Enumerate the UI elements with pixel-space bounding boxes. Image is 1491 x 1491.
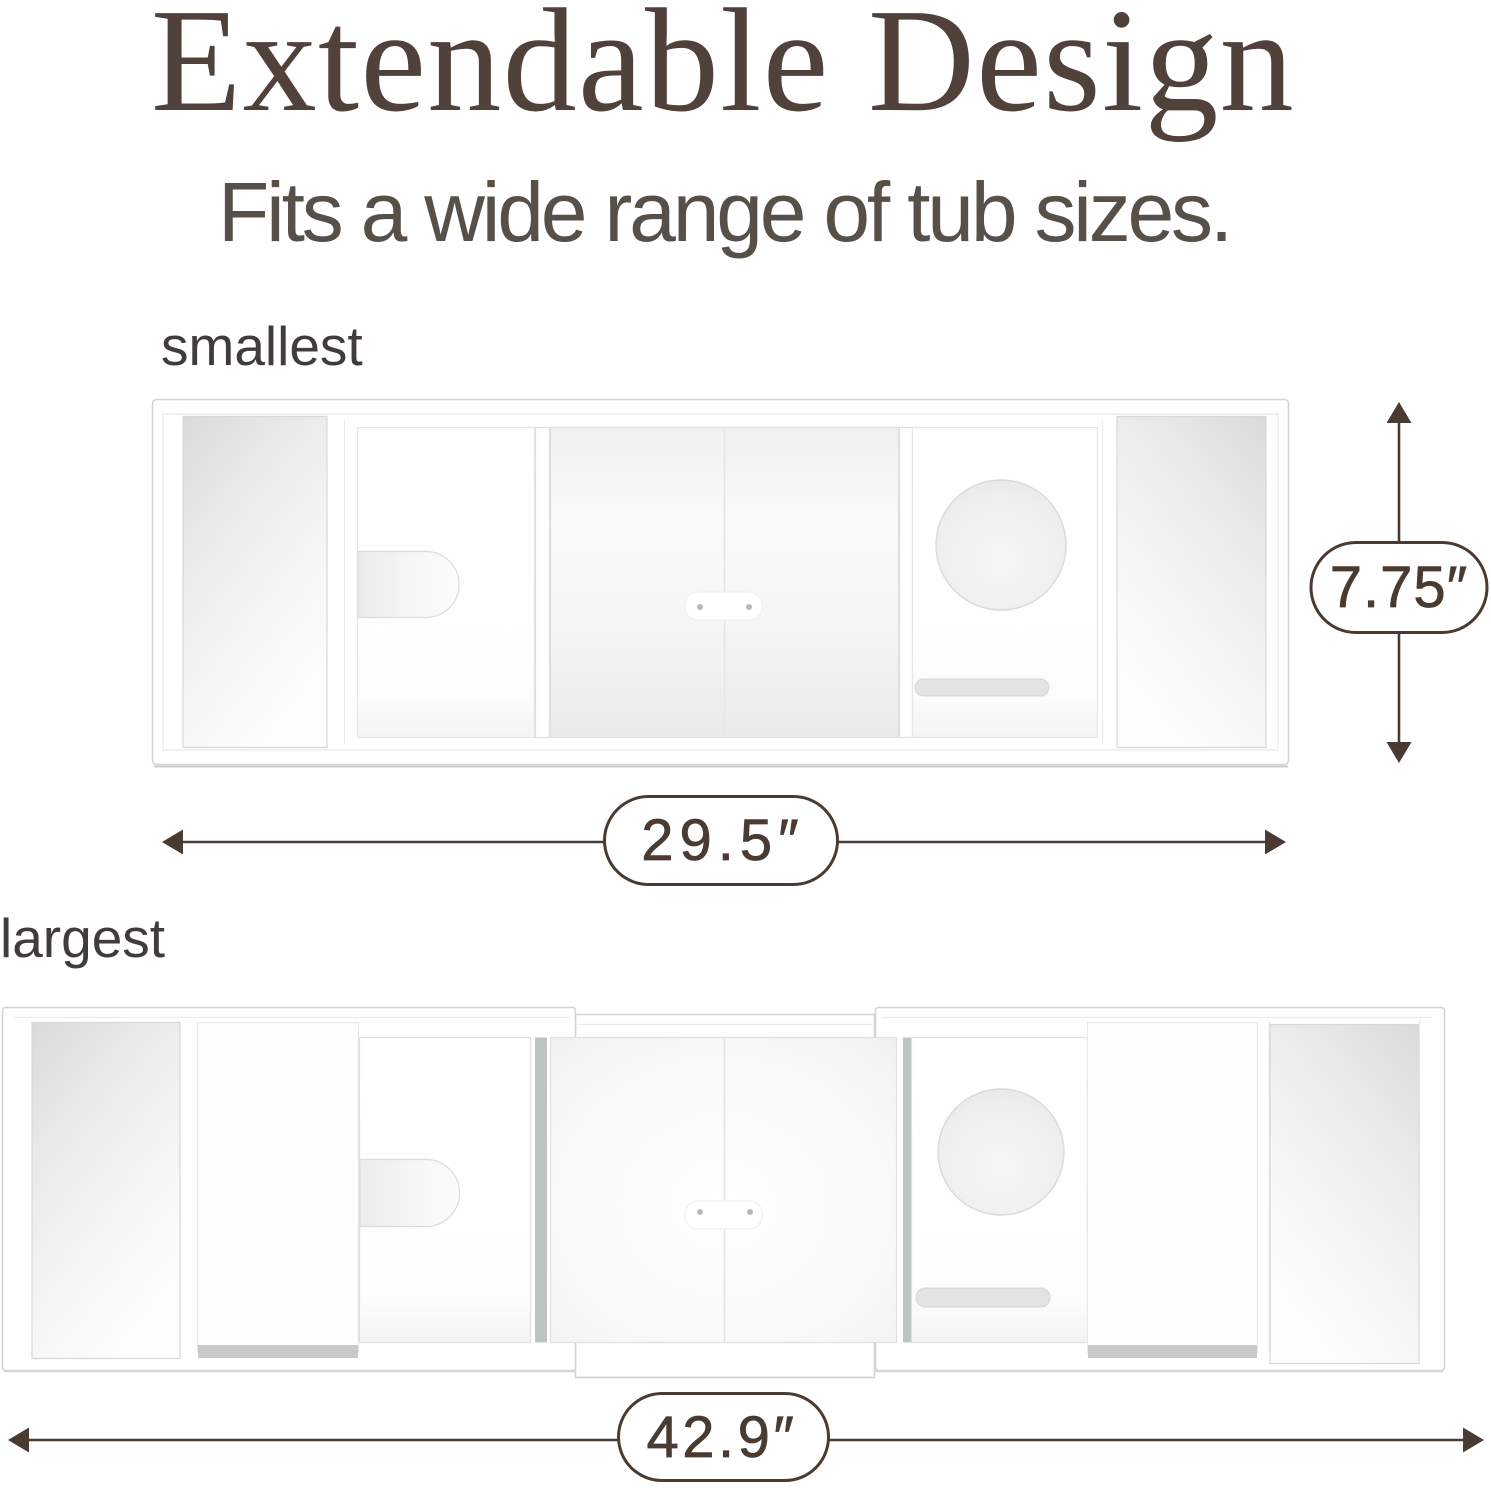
svg-text:42.9″: 42.9″: [647, 1405, 798, 1470]
svg-text:7.75″: 7.75″: [1330, 555, 1468, 620]
svg-text:29.5″: 29.5″: [641, 808, 804, 873]
